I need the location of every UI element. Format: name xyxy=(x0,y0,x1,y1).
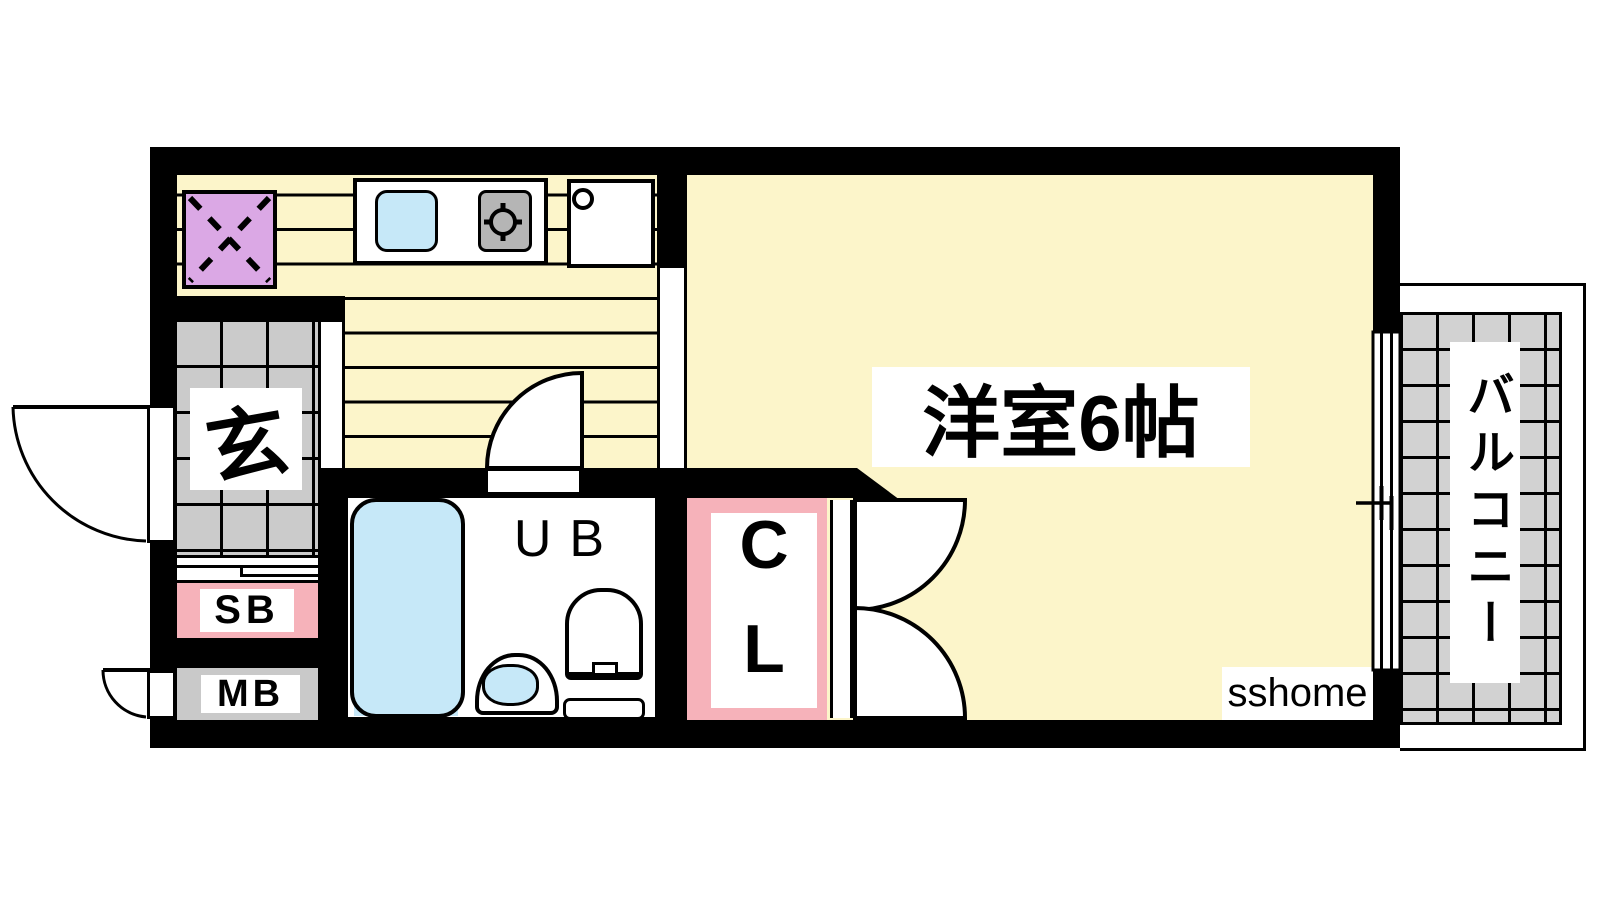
wall-sb-mb-gap xyxy=(177,638,318,668)
entrance-door-gap xyxy=(147,405,176,543)
floor-plan-canvas: バルコニー 玄 SB MB UB CL xyxy=(0,0,1600,900)
kitchen-room-opening xyxy=(657,268,687,468)
step-line xyxy=(240,565,243,577)
entrance-kitchen-opening xyxy=(318,322,345,468)
step-line xyxy=(240,574,318,577)
meterbox-door-gap xyxy=(147,670,176,719)
meter-box-label: MB xyxy=(217,673,284,716)
wall-right-lower xyxy=(1373,670,1400,748)
wash-basin-bowl xyxy=(482,664,539,706)
entrance-step xyxy=(177,555,318,583)
shoe-box-inner: SB xyxy=(200,589,294,632)
toilet-hinge xyxy=(592,662,618,676)
wall-bath-closet xyxy=(658,495,687,720)
closet-sill xyxy=(830,500,853,718)
entrance-label: 玄 xyxy=(197,375,296,503)
meterbox-door-arc xyxy=(103,670,146,717)
meter-box: MB xyxy=(177,668,318,720)
balcony-label: バルコニー xyxy=(1450,370,1520,655)
bath-door-gap xyxy=(485,468,582,495)
refrigerator-space xyxy=(182,190,277,289)
wall-bottom xyxy=(150,720,1400,748)
wall-right-upper xyxy=(1373,147,1400,332)
step-line xyxy=(177,565,318,568)
wall-top xyxy=(150,147,1400,175)
shoe-box-label: SB xyxy=(214,588,280,633)
gas-stove xyxy=(478,190,532,252)
wall-entrance-top xyxy=(150,296,345,322)
toilet-tank xyxy=(563,698,645,720)
closet-inner: CL xyxy=(711,513,817,708)
western-room-label: 洋室6帖 xyxy=(922,361,1199,473)
unit-bath-label: UB xyxy=(514,509,622,569)
closet-box: CL xyxy=(687,498,827,720)
wall-closet-top xyxy=(657,468,857,498)
entrance-label-box: 玄 xyxy=(190,388,302,490)
unit-bath-label-box: UB xyxy=(498,508,638,570)
shoe-box: SB xyxy=(177,583,318,638)
bathtub xyxy=(350,498,465,718)
balcony-label-box: バルコニー xyxy=(1450,342,1520,683)
wall-kitchen-room-stub xyxy=(657,175,687,268)
entrance-door-arc xyxy=(13,407,146,541)
kitchen-sink xyxy=(375,190,438,252)
meter-box-inner: MB xyxy=(201,675,300,713)
utility-pan xyxy=(567,179,655,268)
closet-label: CL xyxy=(725,507,803,715)
watermark-box: sshome xyxy=(1222,667,1373,720)
watermark-label: sshome xyxy=(1227,671,1367,716)
western-room-label-box: 洋室6帖 xyxy=(872,367,1250,467)
